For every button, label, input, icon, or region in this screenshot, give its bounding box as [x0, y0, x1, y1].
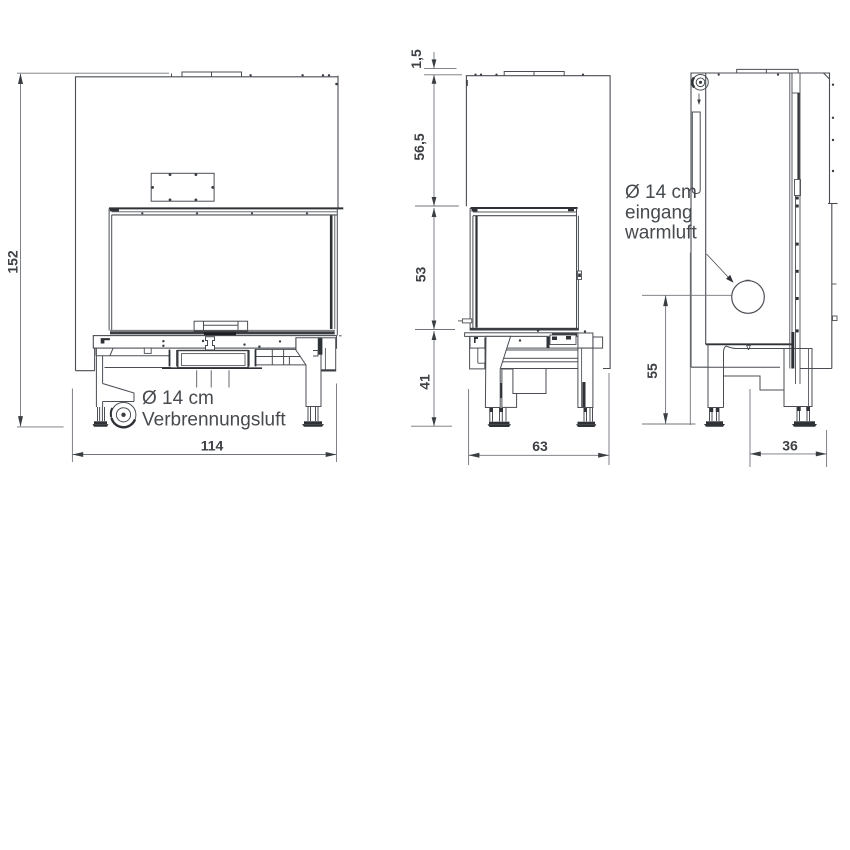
svg-text:41: 41 — [417, 374, 433, 390]
svg-text:55: 55 — [644, 363, 660, 379]
svg-text:eingang: eingang — [625, 203, 693, 224]
svg-text:53: 53 — [413, 267, 429, 283]
svg-text:114: 114 — [201, 438, 224, 454]
svg-text:A: A — [745, 342, 751, 352]
svg-text:Ø 14 cm: Ø 14 cm — [625, 182, 697, 203]
svg-text:Ø 14 cm: Ø 14 cm — [142, 388, 214, 409]
svg-text:1,5: 1,5 — [408, 49, 424, 69]
svg-text:36: 36 — [782, 437, 798, 453]
svg-text:63: 63 — [532, 438, 548, 454]
svg-text:152: 152 — [5, 250, 21, 274]
svg-text:warmluft: warmluft — [624, 223, 698, 244]
svg-text:Verbrennungsluft: Verbrennungsluft — [142, 410, 286, 431]
svg-text:56,5: 56,5 — [411, 133, 427, 160]
